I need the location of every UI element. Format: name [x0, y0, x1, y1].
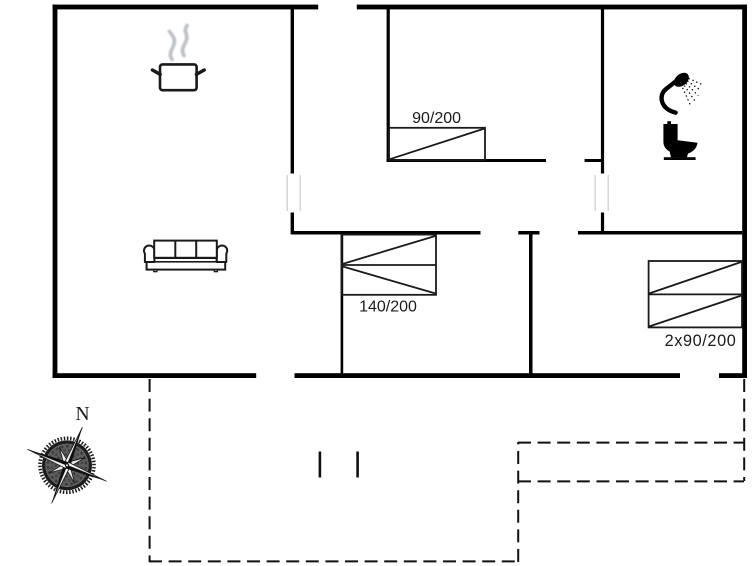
- svg-text:90/200: 90/200: [412, 110, 461, 127]
- svg-text:140/200: 140/200: [359, 299, 417, 316]
- svg-text:N: N: [75, 404, 89, 425]
- svg-text:2x90/200: 2x90/200: [665, 332, 737, 350]
